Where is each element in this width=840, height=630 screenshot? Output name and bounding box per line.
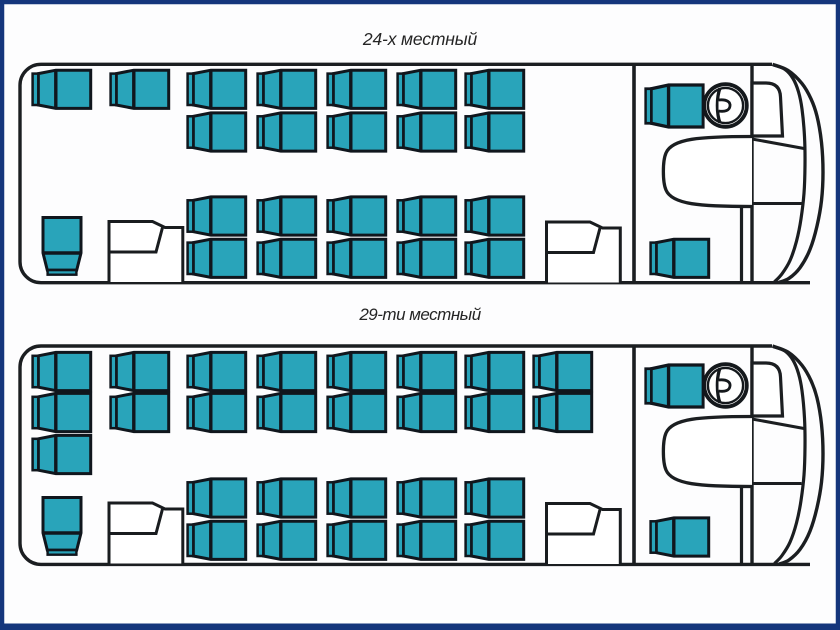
svg-text:29-ти местный: 29-ти местный <box>358 305 481 324</box>
svg-text:24-х местный: 24-х местный <box>362 29 478 49</box>
